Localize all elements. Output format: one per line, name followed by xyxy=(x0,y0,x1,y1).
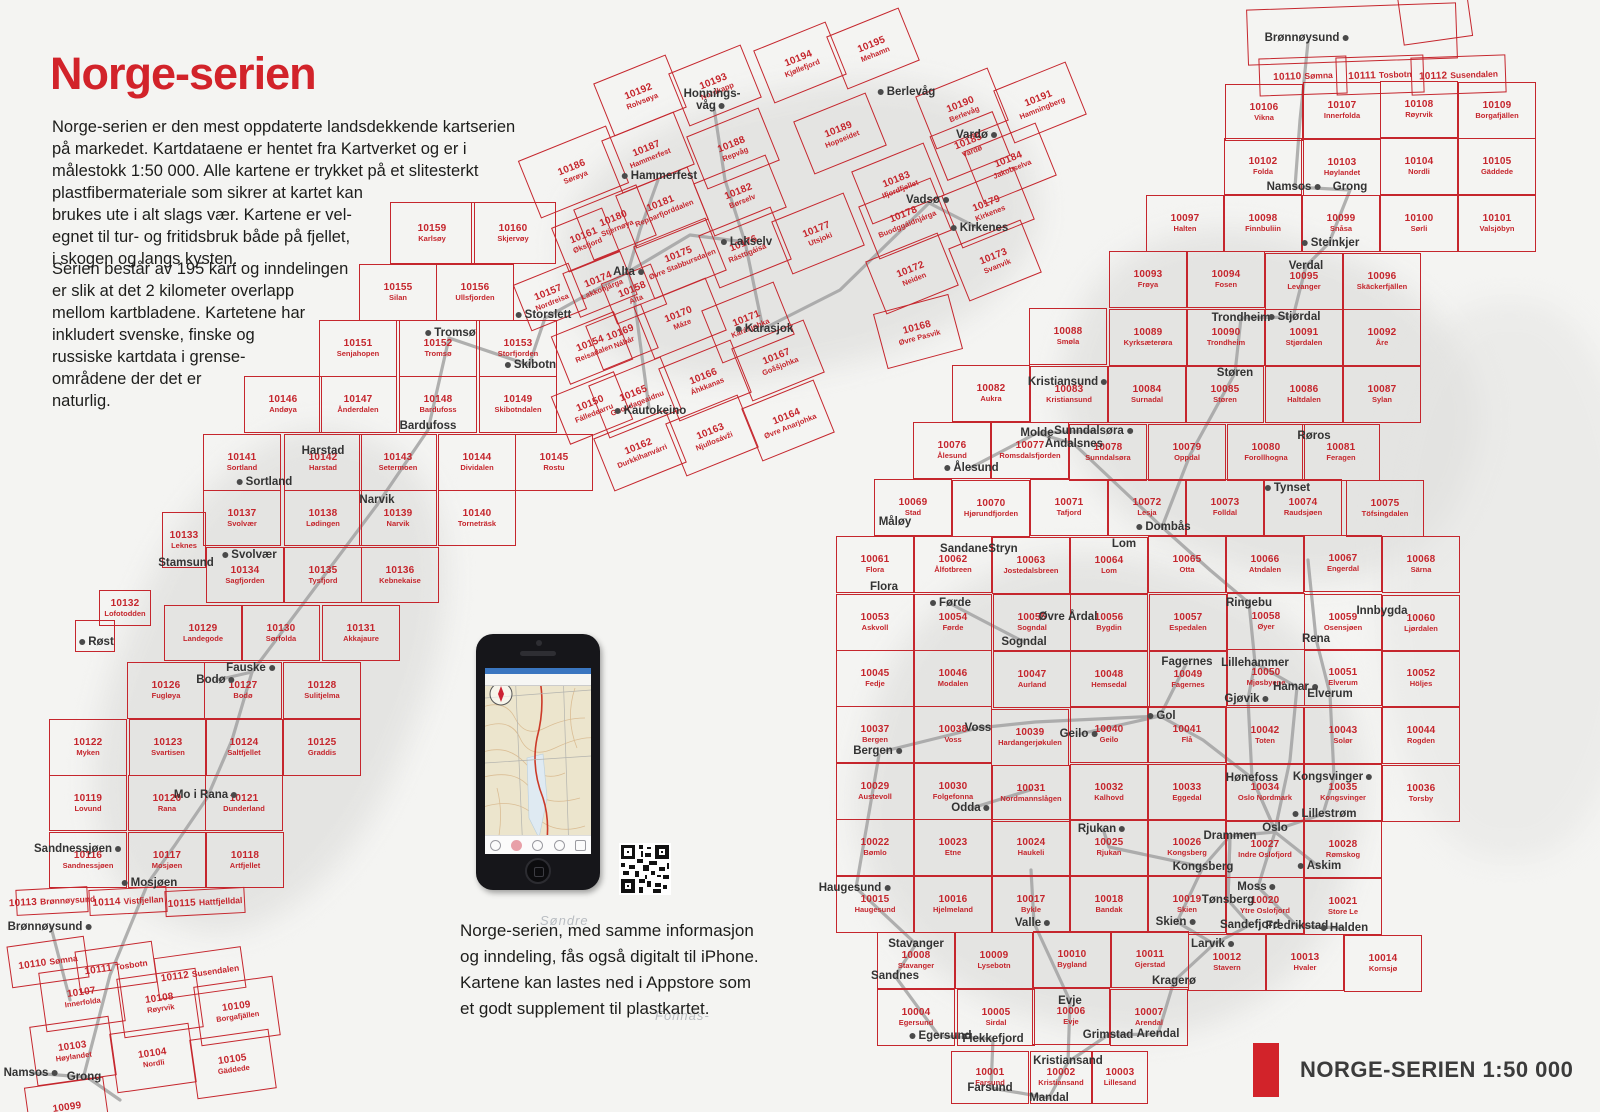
position-icon xyxy=(511,840,522,851)
city-label: Måløy xyxy=(879,516,912,528)
city-label: Røst xyxy=(76,636,114,648)
city-name: Farsund xyxy=(967,1082,1012,1094)
city-name: Karasjok xyxy=(745,323,794,335)
city-label: Brønnøysund xyxy=(1265,32,1352,44)
iphone-caption: Norge-serien, med samme informasjon og i… xyxy=(460,918,759,1022)
city-name: Arendal xyxy=(1137,1028,1180,1040)
city-label: Stamsund xyxy=(158,557,214,569)
city-name: Hønefoss xyxy=(1226,772,1278,784)
city-name: Verdal xyxy=(1289,260,1324,272)
city-name: Mo i Rana xyxy=(174,789,228,801)
city-label: Arendal xyxy=(1137,1028,1180,1040)
city-label: Sandane xyxy=(940,543,988,555)
city-dot xyxy=(884,885,890,891)
city-label: Steinkjer xyxy=(1299,237,1360,249)
city-dot xyxy=(425,330,431,336)
city-label: Harstad xyxy=(302,445,345,457)
city-dot xyxy=(115,846,121,852)
city-label: Bodø xyxy=(196,674,237,686)
city-dot xyxy=(51,1070,57,1076)
city-name: Sandnes xyxy=(871,970,919,982)
city-label: Hammerfest xyxy=(619,170,697,182)
footer-series-label: NORGE-SERIEN 1:50 000 xyxy=(1300,1057,1573,1083)
city-name: Brønnøysund xyxy=(8,921,83,933)
series-paragraph: Serien består av 195 kart og inndelingen… xyxy=(52,258,348,412)
city-name: Halden xyxy=(1330,922,1368,934)
city-dot xyxy=(1091,731,1097,737)
city-label: Fagernes xyxy=(1161,656,1212,668)
qr-code xyxy=(619,843,671,895)
city-dot xyxy=(615,408,621,414)
city-dot xyxy=(1270,884,1276,890)
city-dot xyxy=(1044,920,1050,926)
city-name: Førde xyxy=(939,597,971,609)
city-dot xyxy=(1269,314,1275,320)
city-label: Ringebu xyxy=(1226,597,1272,609)
city-label: Kautokeino xyxy=(612,405,687,417)
city-name: Måløy xyxy=(879,516,912,528)
city-name: Mosjøen xyxy=(131,877,178,889)
city-label: Verdal xyxy=(1289,260,1324,272)
page-title: Norge-serien xyxy=(50,48,316,100)
add-icon xyxy=(532,840,543,851)
city-name: Sunndalsøra xyxy=(1054,425,1124,437)
city-name: Valle xyxy=(1015,917,1041,929)
city-label: Sogndal xyxy=(1001,636,1046,648)
city-name: Vardø xyxy=(956,129,988,141)
city-label: Tynset xyxy=(1262,482,1310,494)
phone-speaker xyxy=(520,651,556,656)
city-name: Lillestrøm xyxy=(1302,808,1357,820)
city-name: Rjukan xyxy=(1078,823,1116,835)
city-label: Valle xyxy=(1015,917,1053,929)
city-name: Oslo xyxy=(1262,822,1288,834)
city-name: Øvre Årdal xyxy=(1039,611,1098,623)
city-name: Kautokeino xyxy=(624,405,687,417)
city-label: Kristiansund xyxy=(1028,376,1110,388)
city-name: Alta xyxy=(613,266,635,278)
city-label: Lakselv xyxy=(718,236,772,248)
city-label: Kongsvinger xyxy=(1293,771,1375,783)
paperclip-icon xyxy=(490,840,501,851)
city-name: Gol xyxy=(1156,710,1175,722)
brand-logo xyxy=(1253,1043,1279,1097)
city-name: Flora xyxy=(870,581,898,593)
city-label: Haugesund xyxy=(819,882,894,894)
city-label: Geilo xyxy=(1060,728,1101,740)
city-name: Storslett xyxy=(525,309,572,321)
city-dot xyxy=(736,326,742,332)
city-label: Vadsø xyxy=(906,194,952,206)
city-label: Rena xyxy=(1302,633,1330,645)
city-label: Lillehammer xyxy=(1221,657,1289,669)
city-name: Lakselv xyxy=(730,236,772,248)
city-label: Farsund xyxy=(967,1082,1012,1094)
city-label: Kristiansand xyxy=(1033,1055,1103,1067)
city-label: Flekkefjord xyxy=(962,1033,1023,1045)
city-label: Storslett xyxy=(513,309,572,321)
city-name: Vadsø xyxy=(906,194,940,206)
city-dot xyxy=(1147,713,1153,719)
city-label: Mosjøen xyxy=(119,877,178,889)
city-name: Tønsberg xyxy=(1202,894,1254,906)
city-label: Kongsberg xyxy=(1173,861,1234,873)
iphone-image xyxy=(476,634,600,890)
city-dot xyxy=(944,465,950,471)
city-dot xyxy=(721,239,727,245)
city-name: Sogndal xyxy=(1001,636,1046,648)
city-name: Dombås xyxy=(1145,521,1190,533)
city-label: Skien xyxy=(1156,916,1199,928)
city-dot xyxy=(229,677,235,683)
city-label: Narvik xyxy=(359,494,394,506)
city-name: Harstad xyxy=(302,445,345,457)
city-label: Åndalsnes xyxy=(1045,438,1103,450)
city-label: Grimstad xyxy=(1083,1029,1134,1041)
list-icon xyxy=(575,840,586,851)
city-label: Flora xyxy=(870,581,898,593)
city-name: Odda xyxy=(951,802,980,814)
city-label: Brønnøysund xyxy=(8,921,95,933)
city-name: Fagernes xyxy=(1161,656,1212,668)
city-name: Innbygda xyxy=(1356,605,1407,617)
city-name: Bergen xyxy=(853,745,893,757)
city-name: Fauske xyxy=(226,662,266,674)
city-dot xyxy=(516,312,522,318)
city-dot xyxy=(505,362,511,368)
city-name: Sortland xyxy=(246,476,293,488)
city-label: Karasjok xyxy=(733,323,794,335)
city-label: Fauske xyxy=(226,662,278,674)
city-name: Stavanger xyxy=(888,938,944,950)
city-name: Askim xyxy=(1307,860,1342,872)
city-label: Innbygda xyxy=(1356,605,1407,617)
city-label: Mo i Rana xyxy=(174,789,240,801)
phone-screen-map xyxy=(485,668,591,854)
city-label: Sortland xyxy=(234,476,293,488)
city-dot xyxy=(909,1033,915,1039)
city-dot xyxy=(638,269,644,275)
city-label: Alta xyxy=(613,266,647,278)
city-name: Åndalsnes xyxy=(1045,438,1103,450)
city-label: Mandal xyxy=(1029,1092,1069,1104)
city-label: Halden xyxy=(1318,922,1368,934)
city-label: Odda xyxy=(951,802,992,814)
phone-camera xyxy=(536,640,542,646)
city-name: Voss xyxy=(965,722,992,734)
city-name: Lillehammer xyxy=(1221,657,1289,669)
city-label: Honnings- våg xyxy=(684,88,741,112)
city-name: Sandnessjøen xyxy=(34,843,112,855)
phone-home-button xyxy=(525,858,551,884)
city-name: Bodø xyxy=(196,674,225,686)
city-name: Namsos xyxy=(1267,181,1312,193)
city-name: Mandal xyxy=(1029,1092,1069,1104)
city-dot xyxy=(991,132,997,138)
city-dot xyxy=(896,748,902,754)
city-dot xyxy=(930,600,936,606)
city-label: Tønsberg xyxy=(1202,894,1254,906)
city-label: Kirkenes xyxy=(948,222,1009,234)
city-name: Berlevåg xyxy=(887,86,936,98)
city-name: Namsos xyxy=(4,1067,49,1079)
city-label: Tromsø xyxy=(422,327,476,339)
phone-toolbar xyxy=(485,835,591,854)
city-name: Kristiansand xyxy=(1033,1055,1103,1067)
city-label: Rjukan xyxy=(1078,823,1128,835)
city-dot xyxy=(719,103,725,109)
city-name: Lom xyxy=(1112,538,1136,550)
city-name: Ålesund xyxy=(953,462,998,474)
city-label: Askim xyxy=(1295,860,1342,872)
city-label: Ålesund xyxy=(941,462,998,474)
city-dot xyxy=(1228,941,1234,947)
search-icon xyxy=(554,840,565,851)
city-label: Sunndalsøra xyxy=(1054,425,1136,437)
city-name: Gjøvik xyxy=(1224,693,1259,705)
city-name: Bardufoss xyxy=(400,420,457,432)
city-dot xyxy=(79,639,85,645)
city-name: Trondheim xyxy=(1212,312,1271,324)
city-label: Gjøvik xyxy=(1224,693,1271,705)
city-name: Hamar xyxy=(1273,681,1309,693)
city-name: Steinkjer xyxy=(1311,237,1360,249)
city-dot xyxy=(122,880,128,886)
intro-paragraph: Norge-serien er den mest oppdaterte land… xyxy=(52,116,515,270)
city-dot xyxy=(1321,925,1327,931)
city-name: Narvik xyxy=(359,494,394,506)
city-dot xyxy=(1119,826,1125,832)
city-dot xyxy=(1366,774,1372,780)
city-label: Vardø xyxy=(956,129,1000,141)
city-dot xyxy=(1314,184,1320,190)
city-label: Evje xyxy=(1058,995,1082,1007)
city-label: Førde xyxy=(927,597,971,609)
city-name: Skibotn xyxy=(514,359,556,371)
city-dot xyxy=(1342,35,1348,41)
city-dot xyxy=(222,552,228,558)
city-name: Tynset xyxy=(1274,482,1310,494)
city-label: Grong xyxy=(67,1071,102,1083)
city-label: Sandnes xyxy=(871,970,919,982)
city-label: Oslo xyxy=(1262,822,1288,834)
city-dot xyxy=(269,665,275,671)
city-dot xyxy=(1298,863,1304,869)
city-label: Gol xyxy=(1144,710,1175,722)
city-name: Sandane xyxy=(940,543,988,555)
city-label: Drammen xyxy=(1203,830,1256,842)
city-name: Flekkefjord xyxy=(962,1033,1023,1045)
city-name: Larvik xyxy=(1191,938,1225,950)
city-label: Larvik xyxy=(1191,938,1237,950)
city-name: Moss xyxy=(1237,881,1266,893)
city-label: Røros xyxy=(1297,430,1330,442)
city-dot xyxy=(1265,485,1271,491)
city-name: Elverum xyxy=(1307,688,1352,700)
brochure-page: 10186Sørøya10187Hammerfest10192Rolvsøya1… xyxy=(0,0,1600,1112)
city-label: Bardufoss xyxy=(400,420,457,432)
city-label: Grong xyxy=(1333,181,1368,193)
city-dot xyxy=(1127,428,1133,434)
city-name: Honnings- våg xyxy=(684,88,741,112)
city-label: Stjørdal xyxy=(1266,311,1321,323)
city-label: Sandnessjøen xyxy=(34,843,124,855)
city-label: Namsos xyxy=(1267,181,1324,193)
city-label: Lillestrøm xyxy=(1290,808,1357,820)
city-name: Geilo xyxy=(1060,728,1089,740)
city-name: Kragerø xyxy=(1152,975,1196,987)
city-label: Hønefoss xyxy=(1226,772,1278,784)
city-name: Røst xyxy=(88,636,114,648)
city-name: Haugesund xyxy=(819,882,882,894)
city-label: Elverum xyxy=(1307,688,1352,700)
city-dot xyxy=(237,479,243,485)
city-name: Grong xyxy=(1333,181,1368,193)
city-name: Skien xyxy=(1156,916,1187,928)
city-name: Grong xyxy=(67,1071,102,1083)
city-name: Stamsund xyxy=(158,557,214,569)
city-name: Kongsberg xyxy=(1173,861,1234,873)
city-name: Evje xyxy=(1058,995,1082,1007)
city-label: Skibotn xyxy=(502,359,556,371)
city-dot xyxy=(1136,524,1142,530)
city-name: Stryn xyxy=(988,543,1017,555)
city-name: Brønnøysund xyxy=(1265,32,1340,44)
city-name: Kongsvinger xyxy=(1293,771,1363,783)
city-name: Ringebu xyxy=(1226,597,1272,609)
city-dot xyxy=(85,924,91,930)
city-label: Namsos xyxy=(4,1067,61,1079)
city-name: Stjørdal xyxy=(1278,311,1321,323)
city-dot xyxy=(622,173,628,179)
city-name: Røros xyxy=(1297,430,1330,442)
city-dot xyxy=(951,225,957,231)
city-dot xyxy=(984,805,990,811)
city-dot xyxy=(878,89,884,95)
city-dot xyxy=(1263,696,1269,702)
city-label: Stryn xyxy=(988,543,1017,555)
city-name: Kristiansund xyxy=(1028,376,1098,388)
city-dot xyxy=(943,197,949,203)
city-name: Kirkenes xyxy=(960,222,1009,234)
city-label: Lom xyxy=(1112,538,1136,550)
city-dot xyxy=(231,792,237,798)
city-label: Moss xyxy=(1237,881,1278,893)
city-label: Bergen xyxy=(853,745,905,757)
city-label: Voss xyxy=(965,722,992,734)
phone-app-header xyxy=(485,674,591,686)
city-dot xyxy=(1101,379,1107,385)
city-label: Støren xyxy=(1217,367,1253,379)
city-label: Svolvær xyxy=(219,549,276,561)
city-name: Svolvær xyxy=(231,549,276,561)
city-label: Berlevåg xyxy=(875,86,936,98)
city-name: Støren xyxy=(1217,367,1253,379)
city-label: Dombås xyxy=(1133,521,1190,533)
city-dot xyxy=(1302,240,1308,246)
city-name: Tromsø xyxy=(434,327,476,339)
city-label: Stavanger xyxy=(888,938,944,950)
city-label: Øvre Årdal xyxy=(1039,611,1098,623)
city-name: Grimstad xyxy=(1083,1029,1134,1041)
city-name: Hammerfest xyxy=(631,170,697,182)
city-label: Trondheim xyxy=(1212,312,1271,324)
city-dot xyxy=(1293,811,1299,817)
city-dot xyxy=(1189,919,1195,925)
city-name: Drammen xyxy=(1203,830,1256,842)
city-label: Kragerø xyxy=(1152,975,1196,987)
city-name: Rena xyxy=(1302,633,1330,645)
